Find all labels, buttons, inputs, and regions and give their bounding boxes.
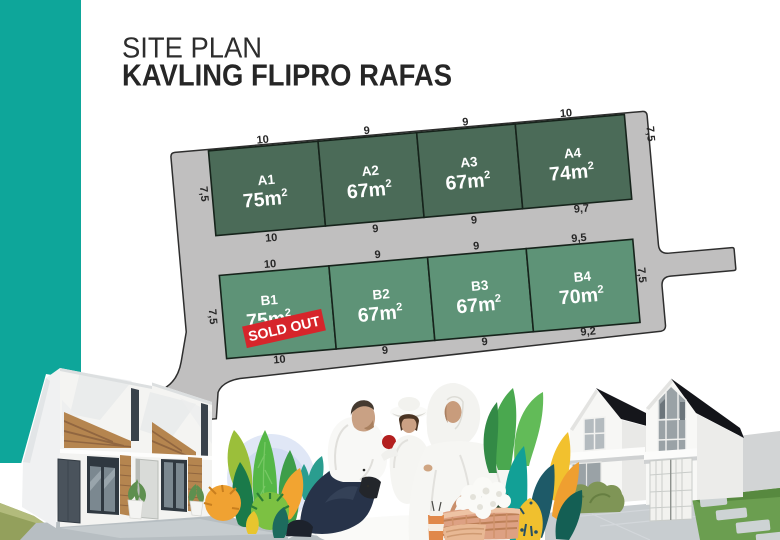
svg-text:10: 10 xyxy=(273,354,286,367)
svg-text:7,5: 7,5 xyxy=(197,186,210,202)
svg-text:70m2: 70m2 xyxy=(558,284,605,310)
svg-text:9: 9 xyxy=(381,345,388,357)
svg-text:A1: A1 xyxy=(257,172,276,188)
svg-text:9: 9 xyxy=(473,240,480,252)
svg-text:7,5: 7,5 xyxy=(635,267,648,283)
svg-text:KAVLING FLIPRO RAFAS: KAVLING FLIPRO RAFAS xyxy=(122,59,452,93)
svg-text:10: 10 xyxy=(263,258,276,271)
svg-text:7,5: 7,5 xyxy=(206,309,219,325)
svg-text:A2: A2 xyxy=(361,163,380,179)
svg-text:67m2: 67m2 xyxy=(455,292,502,318)
svg-text:10: 10 xyxy=(559,107,572,120)
svg-text:A3: A3 xyxy=(460,154,479,170)
svg-text:9,2: 9,2 xyxy=(580,325,596,338)
svg-text:9: 9 xyxy=(363,125,370,137)
svg-text:B4: B4 xyxy=(573,269,592,285)
svg-text:9: 9 xyxy=(470,214,477,226)
svg-text:74m2: 74m2 xyxy=(548,160,595,186)
svg-text:B3: B3 xyxy=(470,278,489,294)
svg-text:9: 9 xyxy=(481,336,488,348)
svg-text:A4: A4 xyxy=(563,145,582,161)
svg-text:9: 9 xyxy=(372,223,379,235)
svg-text:9,7: 9,7 xyxy=(573,202,589,215)
svg-text:9: 9 xyxy=(462,116,469,128)
svg-text:B2: B2 xyxy=(372,286,391,302)
svg-text:67m2: 67m2 xyxy=(357,301,404,327)
svg-text:7,5: 7,5 xyxy=(643,126,656,142)
svg-text:10: 10 xyxy=(256,134,269,147)
svg-text:10: 10 xyxy=(265,232,278,245)
svg-text:9,5: 9,5 xyxy=(571,232,587,245)
svg-text:B1: B1 xyxy=(260,292,279,308)
svg-text:67m2: 67m2 xyxy=(346,178,393,204)
svg-text:75m2: 75m2 xyxy=(242,187,289,213)
svg-text:67m2: 67m2 xyxy=(445,169,492,195)
svg-text:9: 9 xyxy=(374,249,381,261)
